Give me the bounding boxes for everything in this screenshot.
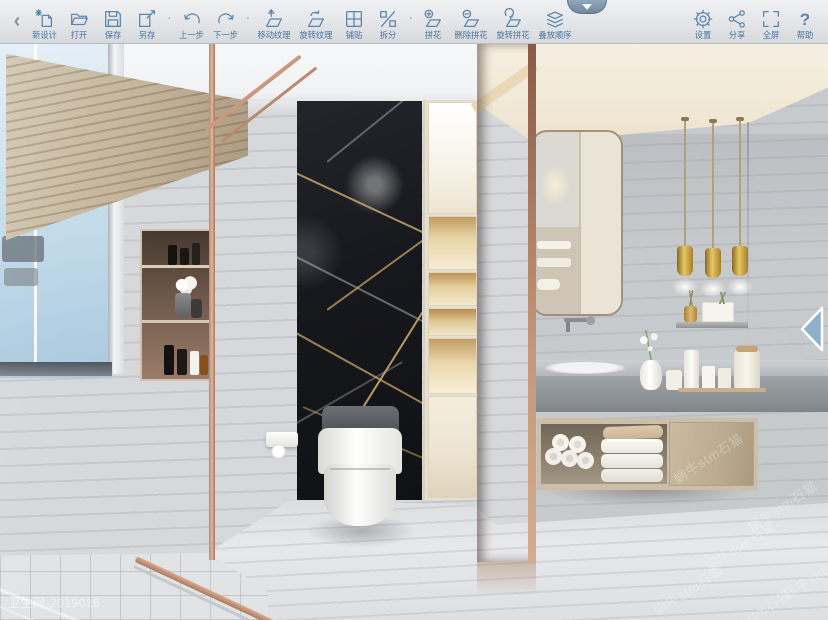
design-app-window: ‹ 新设计 打开 保存 另存 · 上一步 下一步 · xyxy=(0,0,828,620)
render-glass-sheen xyxy=(0,44,232,620)
rotate-texture-icon xyxy=(305,8,327,30)
move-texture-icon xyxy=(263,8,285,30)
render-cabinet-shelf-lit xyxy=(428,216,477,270)
render-diffuser-jar xyxy=(684,306,697,322)
parquet-remove-icon xyxy=(460,8,482,30)
toolbar-button-new-design[interactable]: 新设计 xyxy=(28,2,62,42)
toolbar-button-tile[interactable]: 铺贴 xyxy=(337,2,371,42)
toolbar-button-save-as[interactable]: 另存 xyxy=(130,2,164,42)
render-pendant-cord xyxy=(712,122,714,250)
toolbar-label: 上一步 xyxy=(179,30,204,40)
render-gold-vein xyxy=(297,247,422,335)
render-cabinet-door-top xyxy=(428,102,477,214)
toolbar-separator: · xyxy=(243,9,254,25)
render-pendant-lamp xyxy=(677,246,693,276)
back-button[interactable]: ‹ xyxy=(6,7,28,37)
toolbar-button-save[interactable]: 保存 xyxy=(96,2,130,42)
render-rolled-towel xyxy=(552,434,569,451)
panel-toggle-arrow-button[interactable] xyxy=(800,306,824,352)
render-cabinet-door-bottom xyxy=(428,396,477,498)
toolbar-label: 另存 xyxy=(139,30,156,40)
toolbar-label: 旋转拼花 xyxy=(497,30,530,40)
render-mirror-reflection-shelves xyxy=(533,227,579,314)
parquet-add-icon xyxy=(422,8,444,30)
render-wall-shelf xyxy=(676,322,748,328)
toolbar-label: 移动纹理 xyxy=(258,30,291,40)
render-toilet-bowl xyxy=(324,464,396,526)
toolbar-label: 叠放顺序 xyxy=(539,30,572,40)
split-icon xyxy=(377,8,399,30)
render-counter-vase xyxy=(640,360,662,390)
render-shelf-plant xyxy=(712,292,734,304)
toolbar-label: 保存 xyxy=(105,30,122,40)
arrow-left-icon xyxy=(800,306,824,352)
toolbar-label: 打开 xyxy=(71,30,88,40)
toolbar-button-delete-parquet[interactable]: 删除拼花 xyxy=(450,2,492,42)
toolbar-label: 铺贴 xyxy=(346,30,363,40)
render-mirror-reflection-cabinet xyxy=(579,132,623,314)
toolbar-label: 下一步 xyxy=(213,30,238,40)
render-shelf-box xyxy=(702,302,734,322)
toolbar-label: 设置 xyxy=(695,30,712,40)
toolbar-button-rotate-parquet[interactable]: 旋转拼花 xyxy=(492,2,534,42)
render-rolled-towel xyxy=(577,452,594,469)
toolbar-separator: · xyxy=(405,9,416,25)
render-folded-towel xyxy=(601,469,663,482)
render-vanity-shadow xyxy=(540,490,755,506)
render-pendant-lamp xyxy=(705,248,721,278)
render-faucet-spout xyxy=(566,322,570,332)
toolbar-label: 分享 xyxy=(729,30,746,40)
render-counter-cup xyxy=(718,368,731,390)
toolbar-button-fullscreen[interactable]: 全屏 xyxy=(754,2,788,42)
render-mirror xyxy=(531,130,623,316)
toolbar-button-rotate-texture[interactable]: 旋转纹理 xyxy=(295,2,337,42)
render-counter-sink xyxy=(545,362,625,374)
render-tall-cabinet xyxy=(423,100,478,500)
render-toilet-seam xyxy=(330,468,390,470)
toolbar-button-help[interactable]: ? 帮助 xyxy=(788,2,822,42)
toolbar-button-open[interactable]: 打开 xyxy=(62,2,96,42)
render-pendant-mount xyxy=(681,117,689,121)
render-counter-cup xyxy=(702,366,715,390)
tile-grid-icon xyxy=(343,8,365,30)
toolbar-label: 拼花 xyxy=(425,30,442,40)
render-folded-towel xyxy=(601,454,663,468)
new-design-icon xyxy=(34,8,56,30)
toolbar-button-settings[interactable]: 设置 xyxy=(686,2,720,42)
render-copper-reflection xyxy=(477,562,536,596)
toolbar-button-redo[interactable]: 下一步 xyxy=(209,2,243,42)
render-counter-flowers xyxy=(636,330,662,364)
render-paper-holder xyxy=(266,432,298,447)
layers-icon xyxy=(544,8,566,30)
undo-arrow-icon xyxy=(181,8,203,30)
render-counter-tray xyxy=(678,388,766,392)
toolbar-label: 全屏 xyxy=(763,30,780,40)
toolbar-label: 新设计 xyxy=(33,30,58,40)
save-floppy-icon xyxy=(102,8,124,30)
toolbar-label: 拆分 xyxy=(380,30,397,40)
render-counter-canister xyxy=(666,370,682,390)
render-mirror-reflection-glow xyxy=(540,165,570,205)
open-folder-icon xyxy=(68,8,90,30)
render-rolled-towel xyxy=(569,436,586,453)
toolbar-button-share[interactable]: 分享 xyxy=(720,2,754,42)
render-pendant-lamp xyxy=(732,246,748,276)
toolbar-button-parquet[interactable]: 拼花 xyxy=(416,2,450,42)
chevron-down-icon xyxy=(582,4,592,10)
render-gold-vein xyxy=(327,101,422,162)
render-counter-jar xyxy=(734,350,760,390)
render-counter-bottle xyxy=(684,350,699,390)
toolbar-separator: · xyxy=(164,9,175,25)
render-gold-vein xyxy=(297,167,422,238)
render-paper-roll xyxy=(271,445,286,458)
render-pendant-mount xyxy=(709,119,717,123)
render-cabinet-shelf-lit xyxy=(428,338,477,394)
toolbar-button-undo[interactable]: 上一步 xyxy=(175,2,209,42)
toolbar: ‹ 新设计 打开 保存 另存 · 上一步 下一步 · xyxy=(0,0,828,44)
save-as-icon xyxy=(136,8,158,30)
render-cabinet-shelf-lit xyxy=(428,272,477,306)
render-folded-towel xyxy=(601,439,663,453)
toolbar-button-move-texture[interactable]: 移动纹理 xyxy=(253,2,295,42)
render-pendant-cord xyxy=(684,120,686,248)
render-pendant-mount xyxy=(736,117,744,121)
render-folded-towel-beige xyxy=(603,425,663,440)
gear-icon xyxy=(692,8,714,30)
parquet-rotate-icon xyxy=(502,8,524,30)
render-wall-corner xyxy=(747,122,749,347)
toolbar-label: 帮助 xyxy=(797,30,814,40)
render-mirror-towel xyxy=(537,258,571,267)
back-chevron-icon: ‹ xyxy=(14,10,21,33)
render-mirror-towel xyxy=(537,279,560,289)
render-faucet-handle xyxy=(586,316,595,325)
render-copper-partition-edge xyxy=(528,44,536,562)
redo-arrow-icon xyxy=(215,8,237,30)
render-counter-jar-lid xyxy=(736,346,758,352)
fullscreen-brackets-icon xyxy=(760,8,782,30)
toolbar-label: 删除拼花 xyxy=(454,30,487,40)
render-cabinet-shelf-lit xyxy=(428,308,477,336)
render-pendant-cord xyxy=(739,120,741,248)
render-canvas[interactable]: 蜗牛stm石猫 蜗牛stm石猫 蜗牛stm石猫 蜗牛stm石猫 蜗牛stm石猫 … xyxy=(0,44,828,620)
toolbar-label: 旋转纹理 xyxy=(300,30,333,40)
toolbar-button-split[interactable]: 拆分 xyxy=(371,2,405,42)
help-question-icon: ? xyxy=(800,8,810,30)
share-nodes-icon xyxy=(726,8,748,30)
project-name-label: 卫生间-2019016 xyxy=(8,594,100,611)
render-mirror-towel xyxy=(537,241,571,250)
